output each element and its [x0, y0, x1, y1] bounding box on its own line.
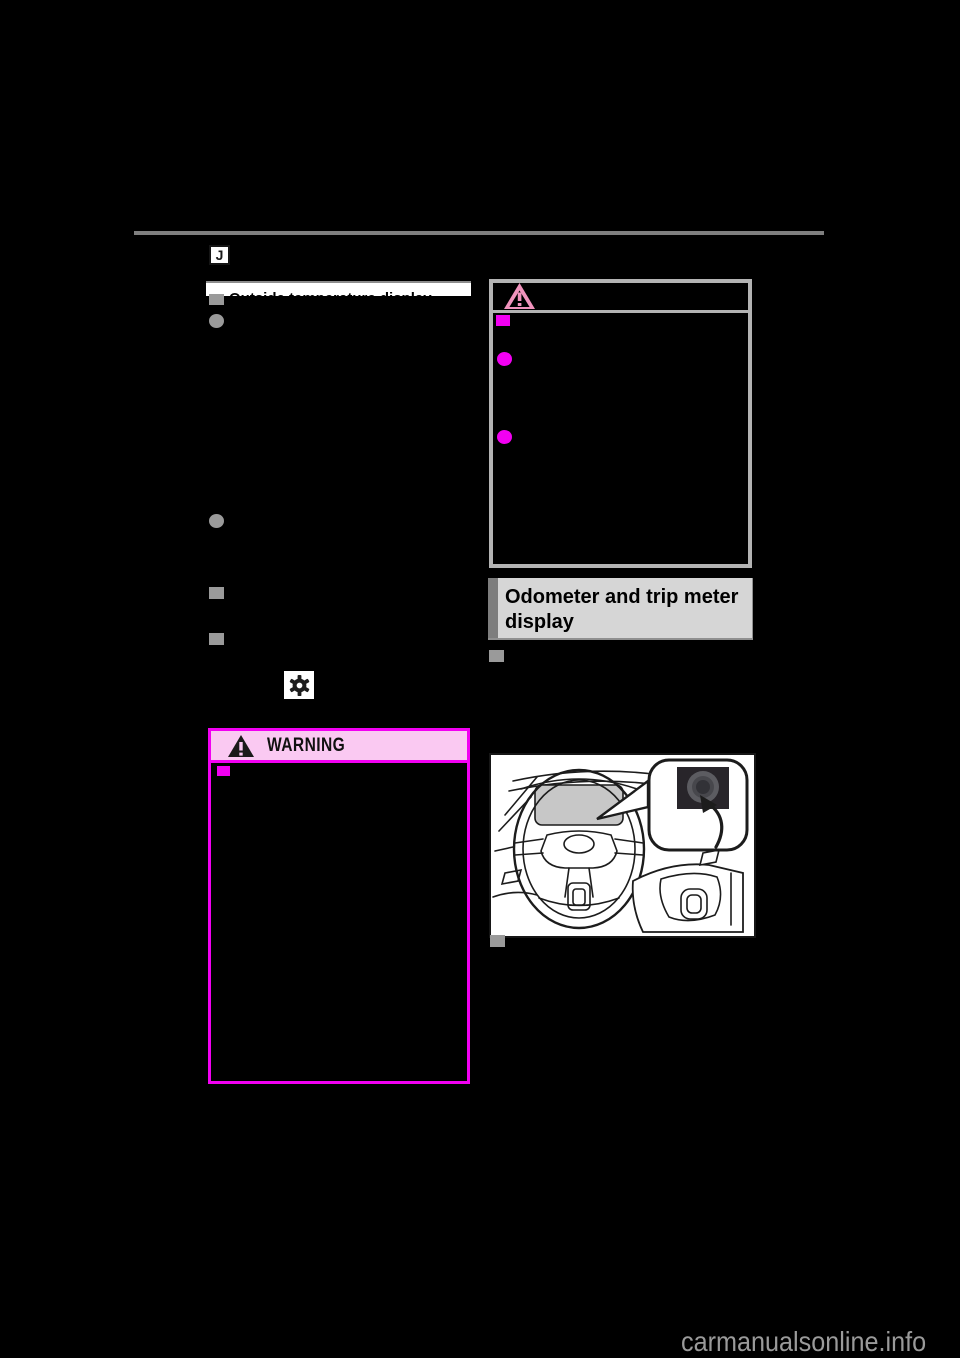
- odometer-heading-line1: Odometer and trip meter: [505, 585, 738, 610]
- bullet-square-icon: [209, 587, 224, 599]
- warning-header: WARNING: [211, 731, 467, 763]
- gear-icon: [284, 671, 314, 699]
- warning-triangle-icon: [227, 734, 255, 758]
- odometer-section-heading: Odometer and trip meter display: [488, 578, 753, 640]
- bullet-circle-magenta-icon: [497, 352, 512, 366]
- bullet-square-magenta-icon: [217, 766, 230, 776]
- dashboard-illustration: [489, 753, 756, 938]
- bullet-square-icon: [209, 294, 224, 305]
- site-watermark: carmanualsonline.info: [681, 1326, 926, 1358]
- bullet-circle-magenta-icon: [497, 430, 512, 444]
- warning-title: WARNING: [267, 735, 345, 757]
- bullet-square-icon: [490, 935, 505, 947]
- bullet-circle-icon: [209, 314, 224, 328]
- odometer-heading-line2: display: [505, 610, 738, 635]
- bullet-circle-icon: [209, 514, 224, 528]
- notice-box: [489, 279, 752, 568]
- notice-triangle-icon: [504, 283, 535, 309]
- bullet-square-icon: [209, 633, 224, 645]
- page-top-rule: [134, 231, 824, 235]
- section-tab-badge: J: [209, 245, 230, 265]
- manual-page: J Outside temperature display: [0, 0, 960, 1358]
- section-tab-label: J: [216, 247, 224, 263]
- bullet-square-icon: [489, 650, 504, 662]
- dashboard-line-art: [491, 755, 754, 936]
- heading-accent-bar: [488, 578, 498, 638]
- gear-icon-glyph: [288, 674, 311, 697]
- notice-header: [493, 283, 748, 313]
- bullet-square-magenta-icon: [496, 315, 510, 326]
- warning-box: WARNING: [208, 728, 470, 1084]
- left-section-heading: Outside temperature display: [229, 290, 474, 307]
